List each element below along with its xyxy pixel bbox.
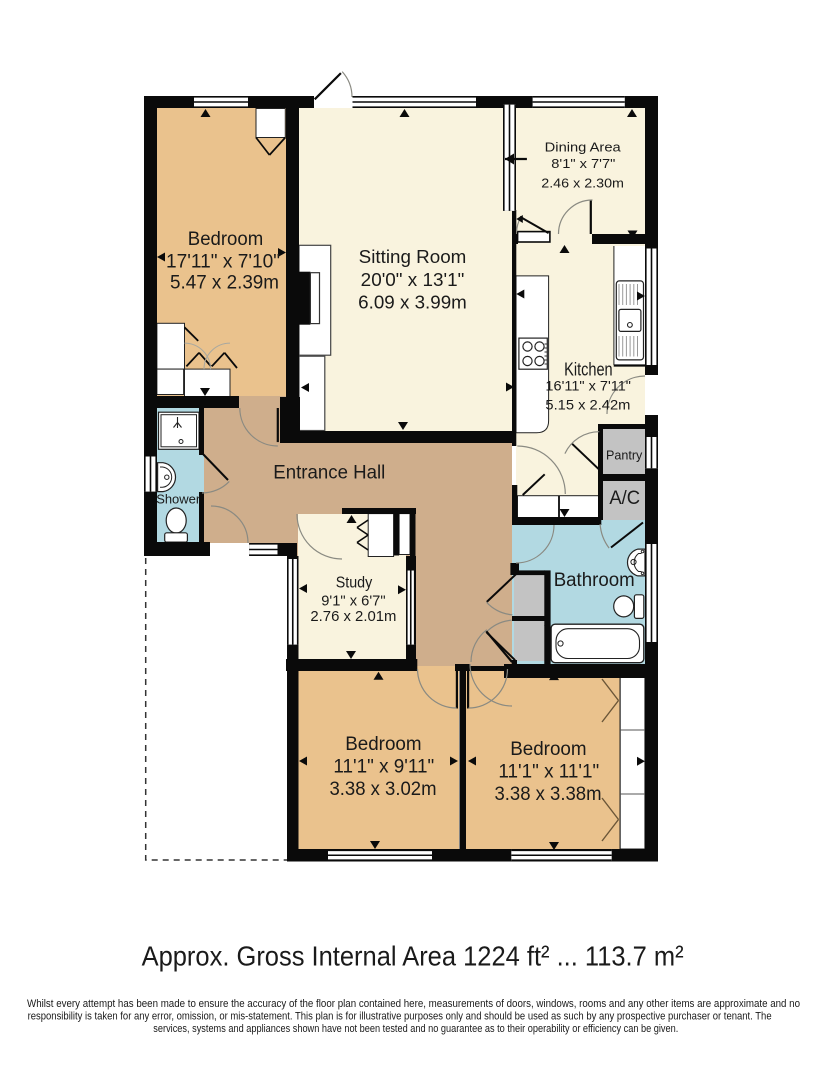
svg-text:17'11" x 7'10": 17'11" x 7'10" bbox=[166, 251, 280, 273]
svg-text:8'1" x 7'7": 8'1" x 7'7" bbox=[551, 156, 615, 171]
svg-text:3.38 x 3.38m: 3.38 x 3.38m bbox=[494, 784, 601, 805]
svg-text:Whilst every attempt has been: Whilst every attempt has been made to en… bbox=[27, 998, 800, 1010]
svg-text:16'11" x 7'11": 16'11" x 7'11" bbox=[545, 378, 631, 394]
svg-text:Approx. Gross Internal Area 12: Approx. Gross Internal Area 1224 ft² ...… bbox=[142, 941, 684, 972]
svg-text:Bedroom: Bedroom bbox=[510, 739, 586, 760]
svg-text:5.15 x 2.42m: 5.15 x 2.42m bbox=[545, 397, 630, 413]
svg-text:2.76 x 2.01m: 2.76 x 2.01m bbox=[310, 608, 396, 625]
svg-text:9'1" x 6'7": 9'1" x 6'7" bbox=[321, 593, 385, 610]
svg-text:11'1" x 11'1": 11'1" x 11'1" bbox=[498, 761, 599, 782]
svg-text:Bathroom: Bathroom bbox=[554, 570, 635, 591]
svg-text:5.47 x 2.39m: 5.47 x 2.39m bbox=[170, 272, 279, 294]
svg-text:Kitchen: Kitchen bbox=[564, 360, 613, 380]
svg-text:2.46 x 2.30m: 2.46 x 2.30m bbox=[541, 175, 624, 190]
svg-text:Entrance Hall: Entrance Hall bbox=[273, 462, 385, 484]
svg-text:Sitting Room: Sitting Room bbox=[359, 247, 467, 267]
svg-text:Study: Study bbox=[336, 575, 373, 592]
svg-text:6.09 x 3.99m: 6.09 x 3.99m bbox=[358, 293, 467, 313]
svg-text:Dining Area: Dining Area bbox=[545, 140, 622, 155]
svg-text:20'0" x 13'1": 20'0" x 13'1" bbox=[361, 270, 465, 290]
svg-text:3.38 x 3.02m: 3.38 x 3.02m bbox=[329, 779, 436, 800]
svg-text:services, systems and applianc: services, systems and appliances shown h… bbox=[153, 1023, 678, 1035]
svg-text:Pantry: Pantry bbox=[606, 448, 643, 462]
svg-text:Shower: Shower bbox=[156, 491, 201, 506]
svg-text:A/C: A/C bbox=[609, 488, 640, 509]
svg-text:11'1" x 9'11": 11'1" x 9'11" bbox=[333, 756, 434, 777]
svg-text:Bedroom: Bedroom bbox=[345, 734, 421, 755]
svg-text:responsibility is taken for an: responsibility is taken for any error, o… bbox=[28, 1011, 772, 1023]
svg-text:Bedroom: Bedroom bbox=[188, 228, 263, 250]
